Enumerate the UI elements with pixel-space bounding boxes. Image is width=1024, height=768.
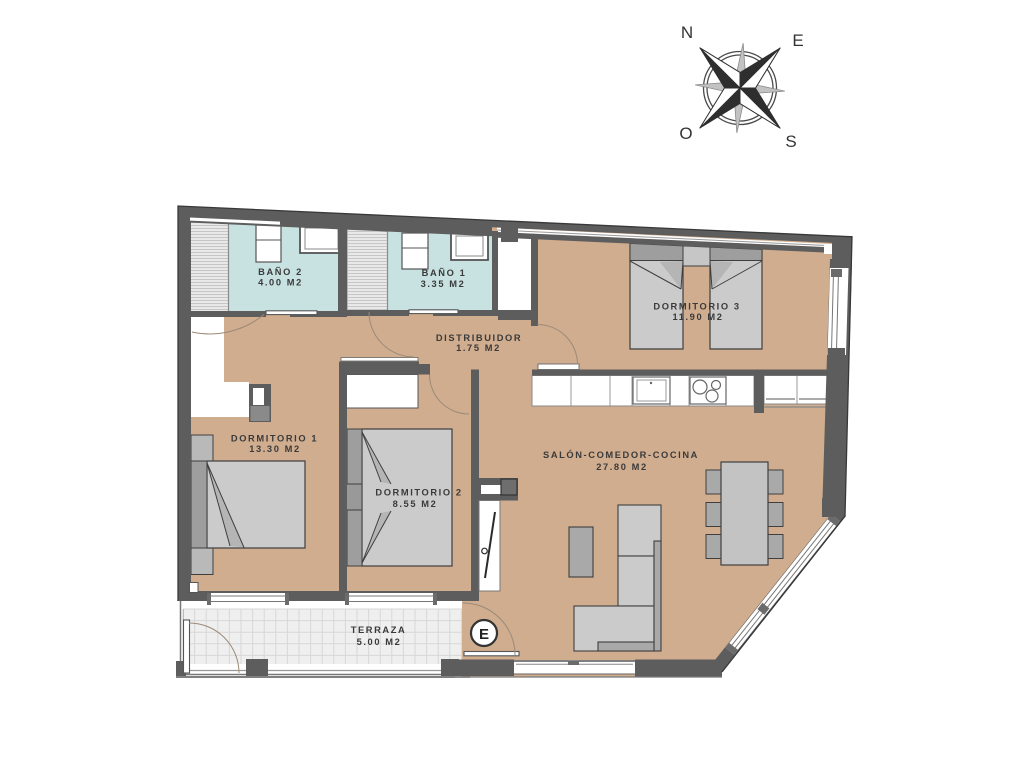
svg-text:1.75 M2: 1.75 M2	[456, 343, 501, 353]
svg-text:11.90 M2: 11.90 M2	[672, 312, 723, 322]
svg-text:E: E	[479, 626, 489, 643]
svg-text:E: E	[792, 31, 803, 50]
svg-text:3.35 M2: 3.35 M2	[421, 279, 466, 289]
svg-text:SALÓN-COMEDOR-COCINA: SALÓN-COMEDOR-COCINA	[543, 449, 699, 460]
svg-text:DORMITORIO 2: DORMITORIO 2	[375, 488, 462, 498]
svg-text:4.00 M2: 4.00 M2	[258, 278, 303, 288]
svg-text:BAÑO 2: BAÑO 2	[258, 267, 303, 277]
svg-text:8.55 M2: 8.55 M2	[393, 499, 438, 509]
svg-text:DORMITORIO 3: DORMITORIO 3	[653, 302, 740, 312]
svg-text:DORMITORIO 1: DORMITORIO 1	[231, 434, 318, 444]
svg-text:DISTRIBUIDOR: DISTRIBUIDOR	[436, 333, 522, 343]
svg-text:13.30 M2: 13.30 M2	[249, 444, 301, 454]
svg-text:27.80 M2: 27.80 M2	[596, 462, 648, 472]
svg-text:S: S	[785, 132, 796, 151]
svg-text:TERRAZA: TERRAZA	[351, 625, 407, 635]
svg-text:N: N	[681, 23, 693, 42]
svg-text:5.00 M2: 5.00 M2	[357, 637, 402, 647]
svg-text:BAÑO 1: BAÑO 1	[422, 268, 467, 278]
svg-text:O: O	[679, 124, 692, 143]
